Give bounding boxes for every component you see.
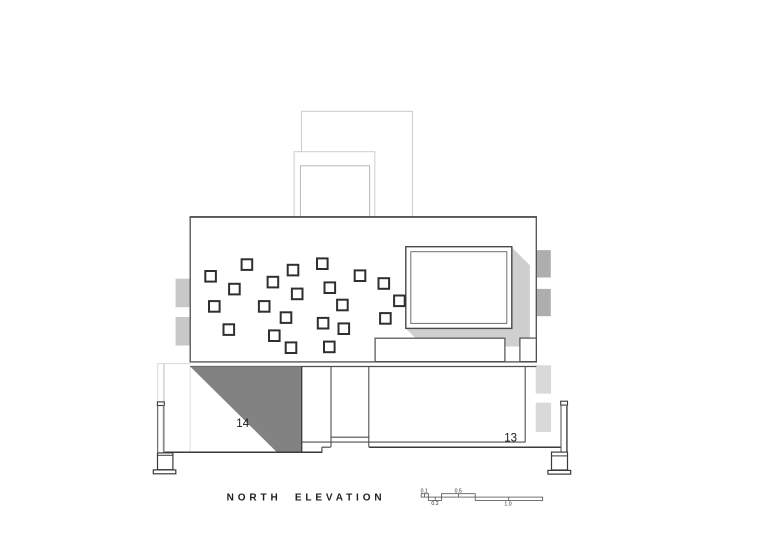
svg-text:0.5: 0.5 xyxy=(455,488,462,494)
svg-text:0.1: 0.1 xyxy=(421,488,428,494)
svg-text:1.0: 1.0 xyxy=(504,501,511,507)
svg-text:NORTH ELEVATION: NORTH ELEVATION xyxy=(227,493,386,504)
svg-text:13: 13 xyxy=(504,432,517,444)
svg-text:0.2: 0.2 xyxy=(431,501,438,507)
svg-text:14: 14 xyxy=(236,418,249,430)
